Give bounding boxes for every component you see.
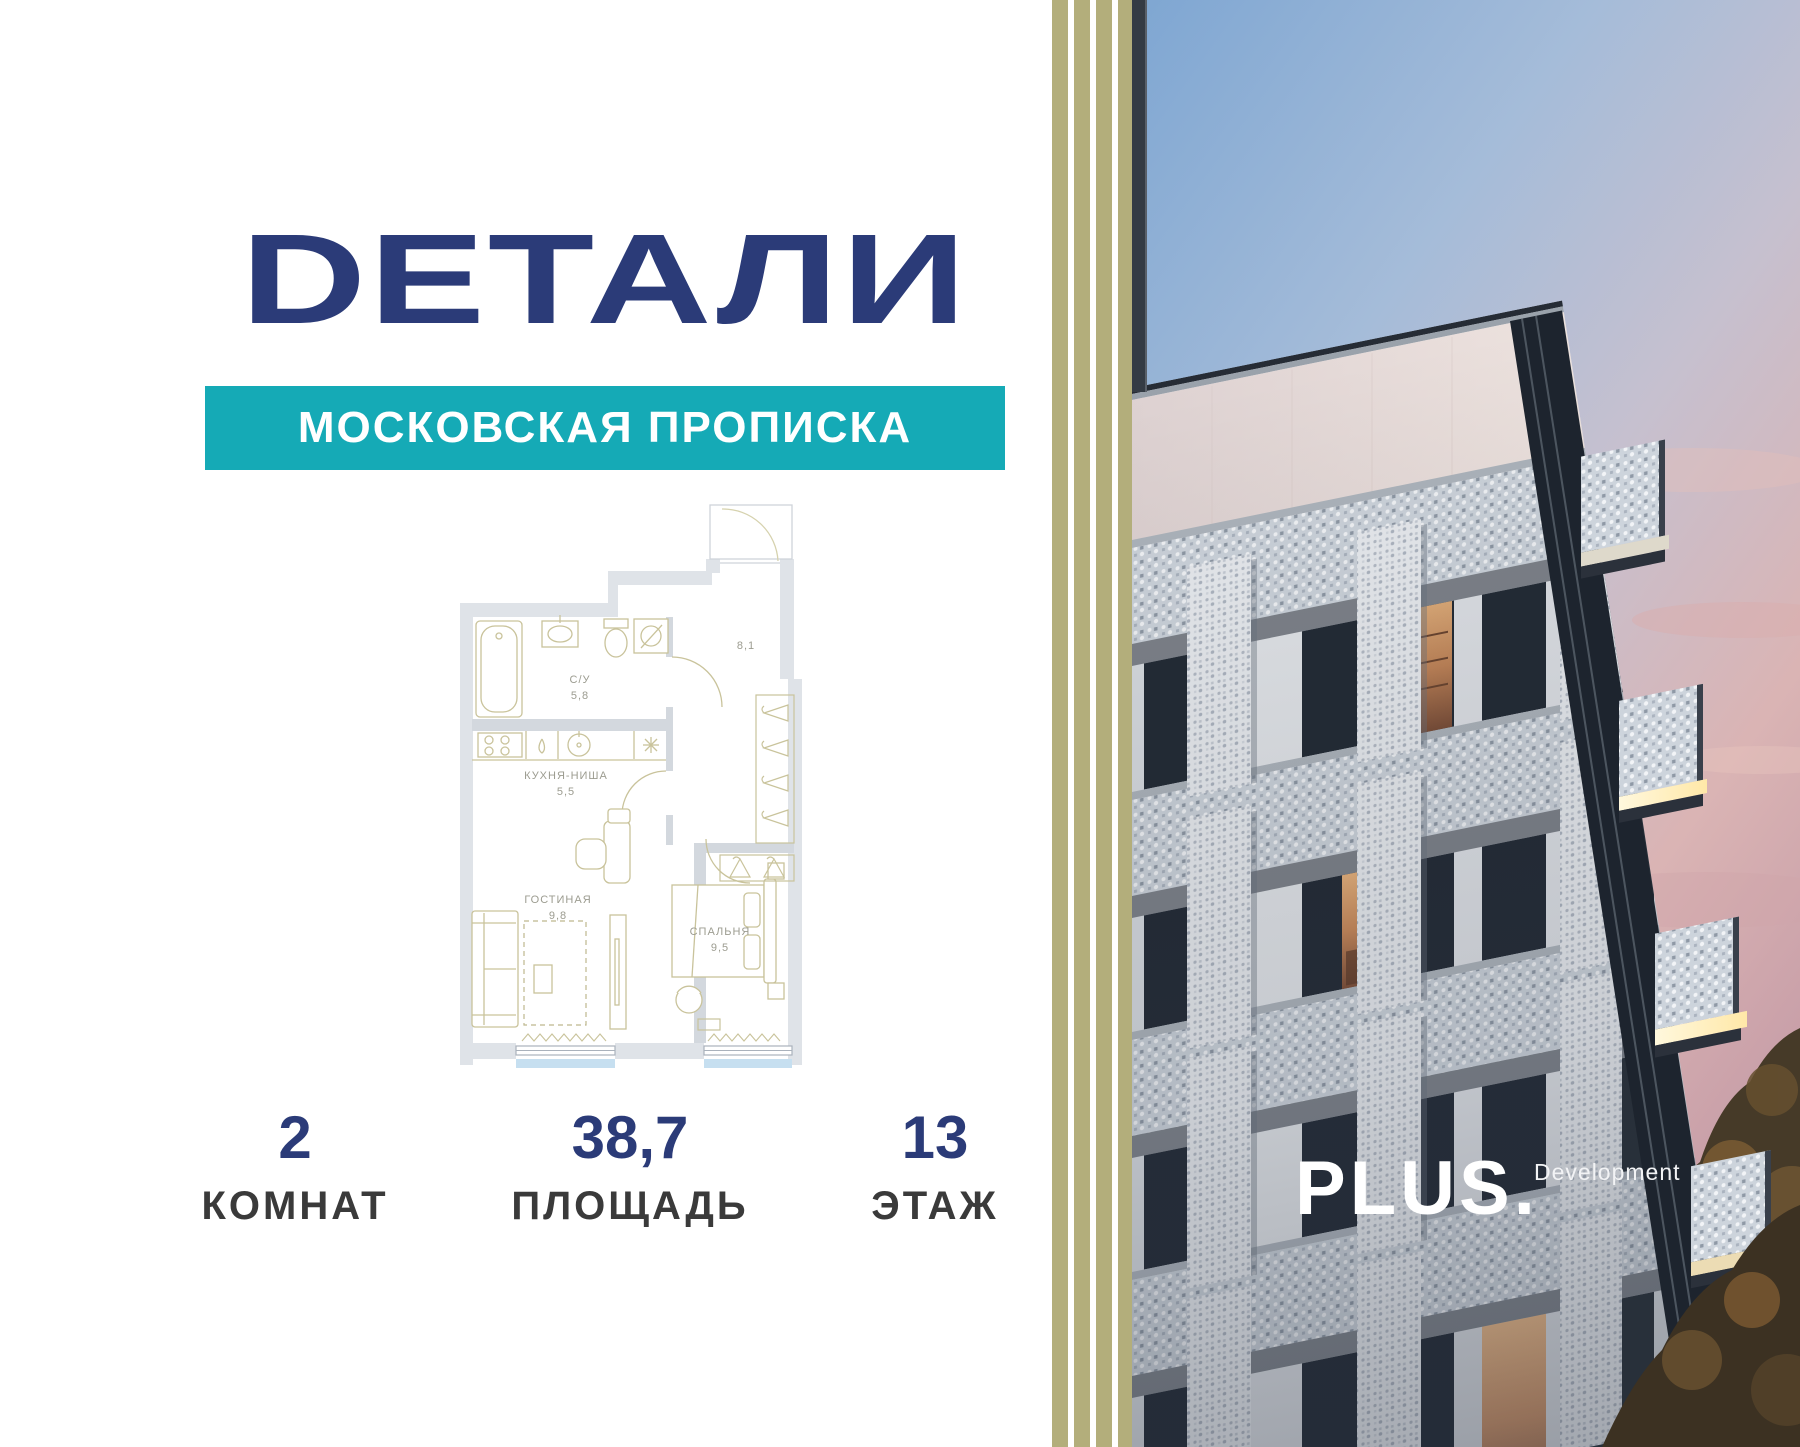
fridge-snowflake-icon bbox=[634, 731, 659, 759]
stat-rooms-label: КОМНАТ bbox=[135, 1184, 455, 1229]
stats-row: 2 КОМНАТ 38,7 ПЛОЩАДЬ 13 ЭТАЖ bbox=[0, 1108, 1052, 1278]
pot-icon bbox=[558, 731, 590, 759]
stat-rooms-value: 2 bbox=[135, 1108, 455, 1168]
bedroom-chair-icon bbox=[676, 986, 702, 1013]
developer-tagline: Development bbox=[1534, 1159, 1681, 1185]
room-area-hall: 8,1 bbox=[737, 640, 755, 652]
stat-area-value: 38,7 bbox=[470, 1108, 790, 1168]
room-label-bedroom: СПАЛЬНЯ bbox=[690, 926, 751, 938]
rug-outline bbox=[524, 921, 586, 1025]
radiator-zigzags bbox=[522, 1034, 780, 1041]
brand-banner: МОСКОВСКАЯ ПРОПИСКА bbox=[205, 386, 1005, 470]
foreground-building-edge bbox=[1132, 0, 1146, 392]
stat-area-label: ПЛОЩАДЬ bbox=[470, 1184, 790, 1229]
brand-logo-text: DЕТАЛИ bbox=[241, 216, 970, 344]
room-area-living: 9,8 bbox=[549, 910, 567, 922]
stove-icon bbox=[478, 733, 522, 757]
plan-entry-door bbox=[710, 505, 792, 563]
bathtub-icon bbox=[476, 621, 522, 717]
sink-icon bbox=[542, 615, 578, 647]
sofa-icon bbox=[472, 911, 518, 1027]
stat-floor-label: ЭТАЖ bbox=[775, 1184, 1095, 1229]
developer-logo-text: PLUS. bbox=[1295, 1146, 1539, 1231]
decor-stripes bbox=[1052, 0, 1132, 1447]
hanger-icon bbox=[762, 705, 788, 826]
edge-highlight bbox=[1145, 0, 1147, 392]
stat-floor: 13 ЭТАЖ bbox=[775, 1108, 1095, 1229]
building-photo: PLUS. Development bbox=[1132, 0, 1800, 1447]
washing-machine-icon bbox=[634, 619, 668, 653]
tv-unit-icon bbox=[610, 915, 626, 1029]
stat-area: 38,7 ПЛОЩАДЬ bbox=[470, 1108, 790, 1229]
kitchen-sink-icon bbox=[526, 731, 545, 759]
toilet-icon bbox=[604, 619, 628, 657]
desk-chair-icon bbox=[576, 809, 630, 883]
room-label-bathroom: С/У bbox=[570, 674, 591, 686]
ad-card: DЕТАЛИ МОСКОВСКАЯ ПРОПИСКА bbox=[0, 0, 1800, 1447]
room-label-kitchen: КУХНЯ-НИША bbox=[524, 770, 608, 782]
floorplan: С/У 5,8 КУХНЯ-НИША 5,5 ГОСТИНАЯ 9,8 СПАЛ… bbox=[458, 503, 803, 1068]
room-area-bedroom: 9,5 bbox=[711, 942, 729, 954]
room-label-living: ГОСТИНАЯ bbox=[524, 894, 591, 906]
brand-logo: DЕТАЛИ bbox=[205, 210, 1005, 350]
brand-banner-text: МОСКОВСКАЯ ПРОПИСКА bbox=[298, 403, 912, 453]
coffee-table-icon bbox=[534, 965, 552, 993]
room-area-kitchen: 5,5 bbox=[557, 786, 575, 798]
stat-floor-value: 13 bbox=[775, 1108, 1095, 1168]
room-area-bathroom: 5,8 bbox=[571, 690, 589, 702]
stat-rooms: 2 КОМНАТ bbox=[135, 1108, 455, 1229]
